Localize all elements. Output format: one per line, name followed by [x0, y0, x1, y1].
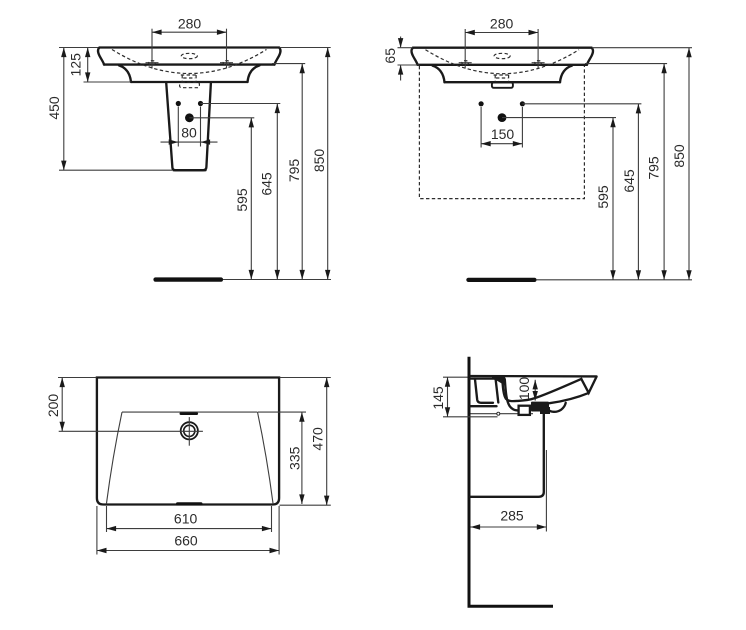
- svg-text:145: 145: [430, 386, 446, 410]
- svg-text:125: 125: [67, 53, 83, 77]
- svg-text:595: 595: [595, 185, 611, 209]
- svg-text:795: 795: [645, 156, 661, 180]
- svg-text:470: 470: [310, 427, 326, 451]
- svg-text:200: 200: [45, 394, 61, 418]
- svg-text:645: 645: [258, 172, 274, 196]
- svg-text:280: 280: [178, 16, 202, 32]
- svg-text:80: 80: [181, 124, 197, 140]
- svg-text:610: 610: [174, 511, 198, 527]
- svg-text:645: 645: [621, 169, 637, 193]
- svg-text:850: 850: [671, 144, 687, 168]
- svg-text:450: 450: [46, 96, 62, 120]
- svg-text:150: 150: [491, 126, 515, 142]
- svg-text:285: 285: [500, 508, 524, 524]
- svg-text:335: 335: [286, 446, 302, 470]
- svg-text:280: 280: [490, 16, 514, 32]
- svg-text:65: 65: [382, 48, 398, 64]
- svg-text:660: 660: [174, 533, 198, 549]
- svg-text:595: 595: [234, 188, 250, 212]
- svg-text:795: 795: [286, 159, 302, 183]
- svg-text:850: 850: [311, 149, 327, 173]
- svg-text:100: 100: [516, 377, 532, 401]
